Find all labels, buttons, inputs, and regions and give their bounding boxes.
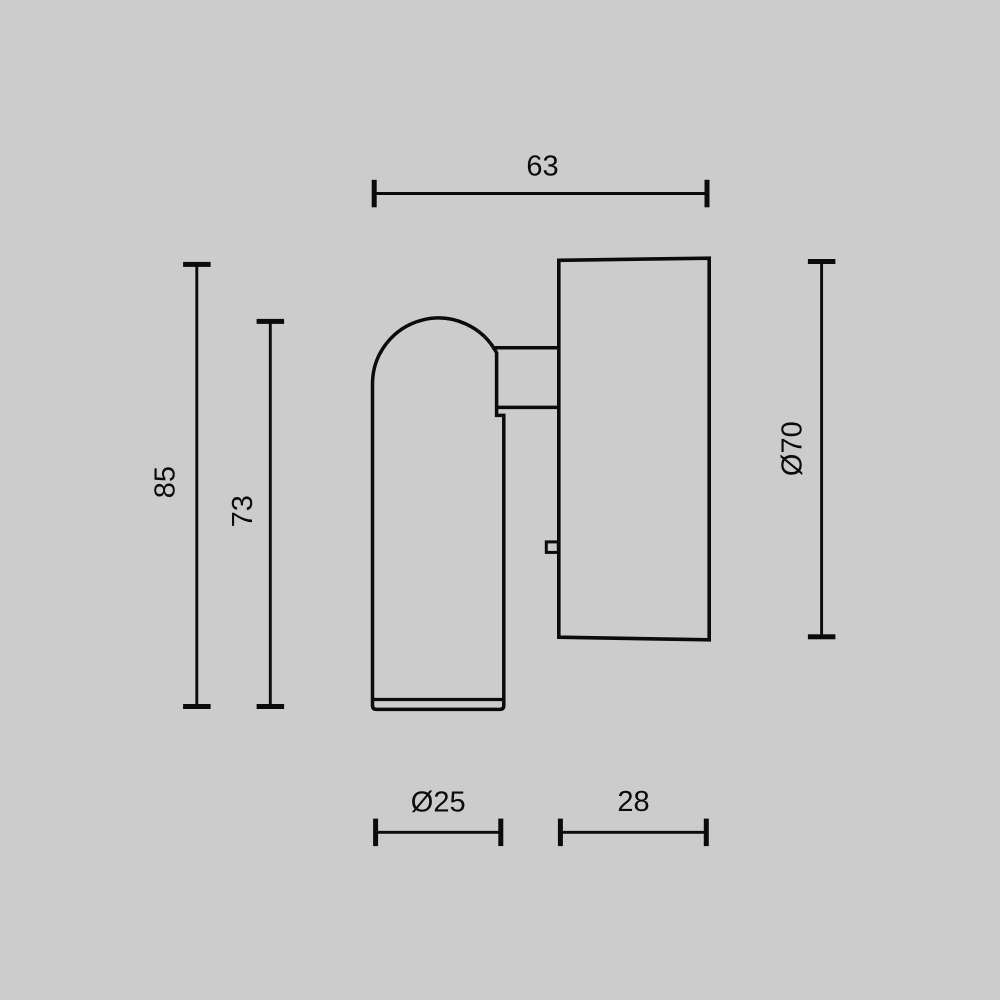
svg-text:Ø70: Ø70: [777, 421, 809, 476]
svg-text:85: 85: [149, 466, 181, 498]
svg-text:73: 73: [227, 495, 259, 527]
svg-text:63: 63: [526, 150, 558, 182]
svg-text:28: 28: [617, 786, 649, 818]
svg-text:Ø25: Ø25: [411, 787, 466, 819]
